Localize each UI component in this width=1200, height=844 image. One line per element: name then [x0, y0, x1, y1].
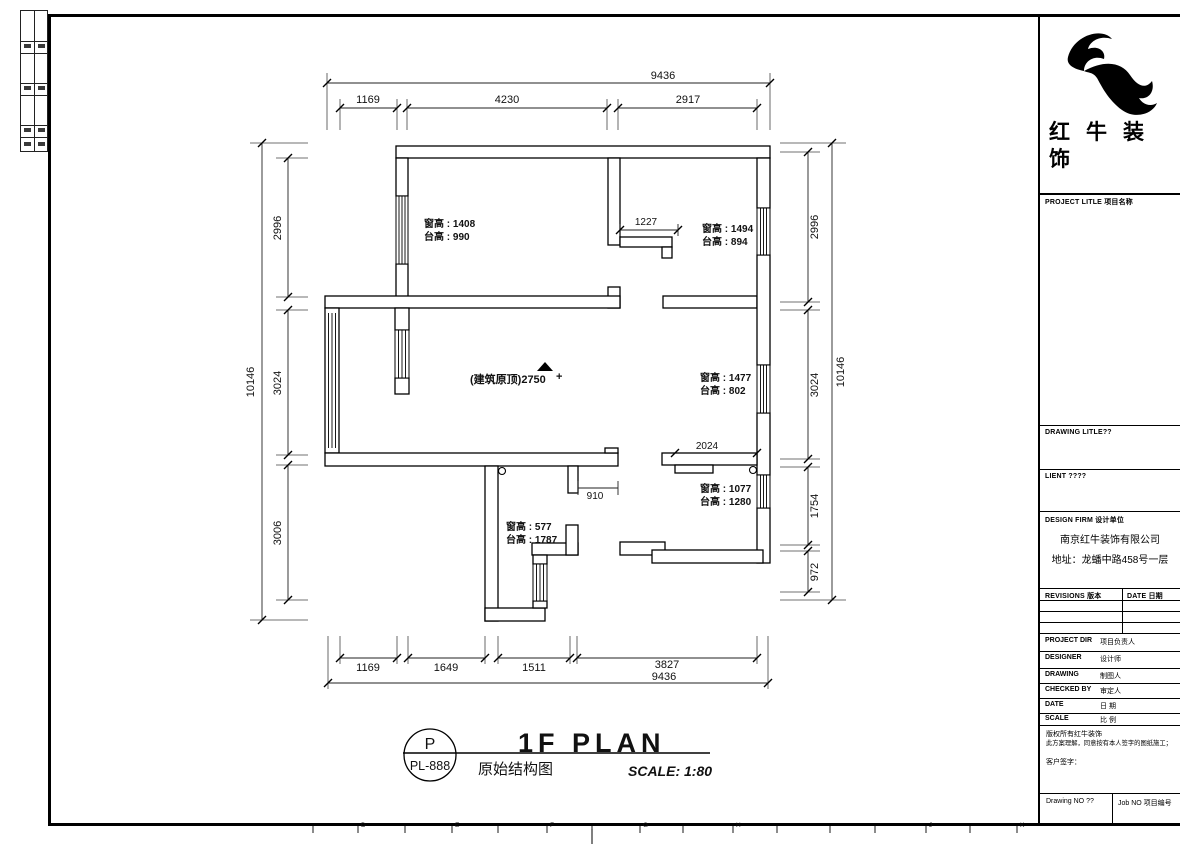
- dim-left-seg-3: 3006: [272, 521, 284, 545]
- title-block-panel: 红牛装饰 PROJECT LITLE 项目名称 DRAWING LITLE?? …: [1038, 17, 1180, 823]
- drawing-sheet: 9436 1169 4230 2917 1169 1649 1511 3827 …: [0, 0, 1200, 844]
- dim-left-seg-2: 3024: [272, 371, 284, 395]
- grid-letter: J: [929, 822, 932, 829]
- grid-reference-letters: D E F G H J K: [361, 822, 1025, 829]
- dim-bottom-overall: 9436: [652, 671, 676, 683]
- ceiling-note-text: (建筑原顶)2750: [470, 372, 546, 386]
- floor-plan-drawing: 9436 1169 4230 2917 1169 1649 1511 3827 …: [0, 0, 1200, 844]
- dim-left-overall: 10146: [245, 367, 257, 398]
- job-no-label: Job NO 项目编号: [1118, 798, 1172, 808]
- date-row-cn: 日 期: [1100, 701, 1116, 711]
- window-note-4-line1: 窗高 : 1077: [700, 482, 752, 495]
- checked-by-cn: 审定人: [1100, 686, 1121, 696]
- grid-letter: F: [550, 822, 554, 829]
- grid-letter: E: [455, 822, 460, 829]
- dim-bottom-seg-3: 1511: [522, 662, 546, 674]
- windows: [395, 196, 770, 601]
- window-note-4-line2: 台高 : 1280: [700, 495, 752, 508]
- dim-bottom-seg-2: 1649: [434, 662, 458, 674]
- window-note-2-line1: 窗高 : 1494: [702, 222, 754, 235]
- revision-strip-table: [20, 10, 48, 152]
- ceiling-note: (建筑原顶)2750 +: [470, 362, 562, 386]
- dim-left-seg-1: 2996: [272, 216, 284, 240]
- grid-letter: G: [643, 822, 648, 829]
- dim-top-seg-3: 2917: [676, 94, 700, 106]
- window-note-1-line1: 窗高 : 1408: [424, 217, 476, 230]
- grid-reference-ticks: [313, 825, 1017, 833]
- grid-letter: K: [1020, 822, 1025, 829]
- project-dir-label: PROJECT DIR: [1045, 637, 1092, 644]
- window-note-5-line2: 台高 : 1787: [506, 533, 558, 546]
- window-note-2-line2: 台高 : 894: [702, 235, 748, 248]
- bubble-code: PL-888: [410, 759, 450, 773]
- design-firm-address: 地址：龙蟠中路458号一层: [1040, 551, 1180, 566]
- door-hinge-circles: [499, 467, 757, 475]
- dim-opening-2024: 2024: [696, 441, 719, 452]
- sheet-title: P PL-888 1F PLAN 原始结构图 SCALE: 1:80: [403, 728, 712, 781]
- drawing-label: DRAWING: [1045, 671, 1079, 678]
- scale-label: SCALE: 1:80: [628, 763, 712, 779]
- dim-top-overall: 9436: [651, 70, 675, 82]
- dim-right-overall: 10146: [835, 357, 847, 388]
- elevation-triangle-icon: [537, 362, 553, 371]
- dim-bottom-seg-4: 3827: [655, 659, 679, 671]
- grid-letter: D: [361, 822, 366, 829]
- client-signature-label: 客户签字：: [1046, 757, 1081, 767]
- client-section-label: LIENT ????: [1045, 473, 1086, 480]
- designer-label: DESIGNER: [1045, 654, 1082, 661]
- designer-cn: 设计师: [1100, 654, 1121, 664]
- bubble-letter: P: [425, 736, 436, 753]
- company-name: 红牛装饰: [1049, 119, 1181, 173]
- drawing-title-section-label: DRAWING LITLE??: [1045, 429, 1112, 436]
- ceiling-note-plus: +: [556, 371, 562, 383]
- scale-row-cn: 比 例: [1100, 715, 1116, 725]
- drawing-no-label: Drawing NO ??: [1046, 798, 1094, 805]
- dim-bottom-seg-1: 1169: [356, 662, 380, 674]
- window-note-3-line2: 台高 : 802: [700, 384, 746, 397]
- red-bull-logo-icon: [1054, 23, 1166, 119]
- project-title-section-label: PROJECT LITLE 项目名称: [1045, 197, 1133, 207]
- window-note-3-line1: 窗高 : 1477: [700, 371, 752, 384]
- dim-top-seg-1: 1169: [356, 94, 380, 106]
- copyright-line-2: 此方案理解，同意按有本人签字的图纸施工；: [1046, 738, 1172, 747]
- dim-right-seg-1: 2996: [809, 215, 821, 239]
- drawing-cn: 制图人: [1100, 671, 1121, 681]
- main-title: 1F PLAN: [518, 728, 666, 758]
- window-note-5-line1: 窗高 : 577: [506, 520, 552, 533]
- window-note-1-line2: 台高 : 990: [424, 230, 470, 243]
- scale-row-label: SCALE: [1045, 715, 1069, 722]
- dim-opening-910: 910: [587, 491, 604, 502]
- checked-by-label: CHECKED BY: [1045, 686, 1091, 693]
- dim-right-seg-3: 1754: [809, 494, 821, 518]
- date-row-label: DATE: [1045, 701, 1064, 708]
- dim-right-seg-2: 3024: [809, 373, 821, 397]
- dim-passage: 1227: [635, 217, 658, 228]
- design-firm-section-label: DESIGN FIRM 设计单位: [1045, 515, 1124, 525]
- grid-letter: H: [736, 822, 741, 829]
- sub-title: 原始结构图: [478, 761, 553, 778]
- design-firm-name: 南京红牛装饰有限公司: [1040, 531, 1180, 546]
- dim-right-seg-4: 972: [809, 563, 821, 581]
- dim-top-seg-2: 4230: [495, 94, 519, 106]
- project-dir-cn: 项目负责人: [1100, 637, 1135, 647]
